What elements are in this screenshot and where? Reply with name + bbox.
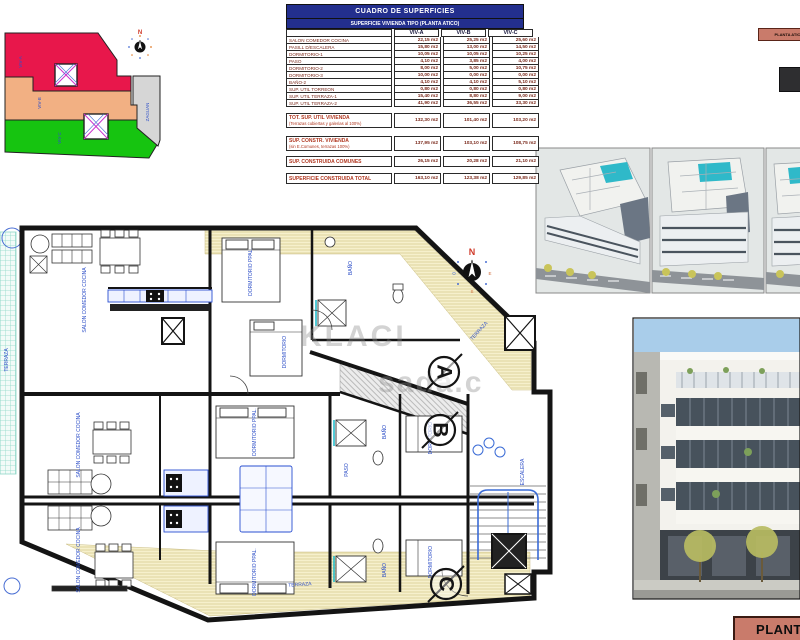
floor-plan: KLACI sada.c SALON COMEDOR COCINA SALON … — [0, 228, 550, 620]
furniture-living-bc — [48, 422, 133, 591]
site-plan: VIV-A VIV-B VIV-C ZAGUAN N — [5, 30, 160, 158]
site-area-viv-c — [5, 120, 158, 158]
site-label-zaguan: ZAGUAN — [145, 103, 150, 122]
header-empty-cell — [286, 29, 392, 37]
table-row: SUP. UTIL TERRAZA-1 15,40 m2 8,80 m2 9,0… — [286, 93, 524, 100]
svg-text:KLACI: KLACI — [300, 320, 407, 353]
bedrooms-a — [222, 238, 302, 376]
furniture-living-a — [30, 230, 140, 273]
summary-construida-comunes: SUP. CONSTRUIDA COMUNES 26,15 m2 20,28 m… — [286, 156, 524, 167]
svg-text:PASO: PASO — [344, 463, 350, 477]
planter-circle-bottom — [4, 578, 20, 594]
site-compass-icon: N — [128, 30, 152, 59]
header-viv-b: VIV-B — [441, 29, 486, 37]
site-label-viv-b: VIV-B — [37, 97, 42, 109]
section-marker-a: A — [433, 364, 456, 379]
summary-total-util: TOT. SUP. UTIL VIVIENDA (Terrazas cubier… — [286, 113, 524, 128]
summary-construida-total: SUPERFICIE CONSTRUIDA TOTAL 163,10 m2 12… — [286, 173, 524, 184]
render-thumb-2 — [652, 148, 764, 293]
svg-text:DORMITORIO: DORMITORIO — [282, 336, 288, 369]
table-row: DORMITORIO-2 8,00 m2 5,00 m2 10,75 m2 — [286, 65, 524, 72]
detail-chip — [779, 67, 800, 92]
table-row: BAÑO-2 4,10 m2 4,10 m2 5,10 m2 — [286, 79, 524, 86]
render-thumb-3 — [766, 148, 800, 293]
svg-text:E: E — [488, 271, 491, 276]
svg-text:TERRAZA: TERRAZA — [4, 348, 10, 372]
section-marker-b: B — [429, 422, 452, 437]
svg-text:N: N — [469, 247, 476, 257]
render-thumb-1 — [536, 148, 650, 293]
svg-text:S: S — [470, 289, 473, 294]
surface-table-title: CUADRO DE SUPERFICIES — [286, 4, 524, 19]
svg-text:ESCALERA: ESCALERA — [520, 458, 526, 485]
table-row: SUP. UTIL TERRAZA-2 41,90 m2 36,55 m2 33… — [286, 100, 524, 107]
summary-constr-vivienda: SUP. CONSTR. VIVIENDA (sin E.Comunes, te… — [286, 136, 524, 151]
sheet-title-tag: PLANTA ATICO — [733, 616, 800, 640]
site-label-viv-a: VIV-A — [18, 56, 23, 68]
table-row: PASO 4,10 m2 3,85 m2 4,00 m2 — [286, 58, 524, 65]
svg-text:SALON COMEDOR COCINA: SALON COMEDOR COCINA — [82, 267, 88, 333]
surface-table-header-row: VIV-A VIV-B VIV-C — [286, 29, 524, 37]
table-row: PASILL D/ESCALERA 15,80 m2 13,00 m2 14,5… — [286, 44, 524, 51]
facade-balconies — [676, 398, 800, 524]
site-torreon-2 — [84, 114, 108, 139]
section-marker-c: C — [435, 576, 458, 591]
svg-text:BAÑO: BAÑO — [381, 563, 388, 577]
site-label-viv-c: VIV-C — [57, 131, 62, 144]
svg-text:BAÑO: BAÑO — [381, 425, 388, 439]
table-row: SUP. UTIL TORREON 0,80 m2 0,80 m2 0,80 m… — [286, 86, 524, 93]
svg-text:DORMITORIO PPAL.: DORMITORIO PPAL. — [248, 248, 254, 296]
header-viv-c: VIV-C — [488, 29, 533, 37]
kitchens-bc — [164, 470, 208, 532]
render-thumbnails — [536, 148, 800, 293]
table-row: SALON COMEDOR COCINA 22,15 m2 25,25 m2 2… — [286, 37, 524, 44]
svg-text:BAÑO: BAÑO — [347, 261, 354, 275]
site-torreon-1 — [55, 64, 77, 86]
svg-text:O: O — [452, 271, 456, 276]
mini-plan-tag: PLANTA ATICO — [758, 28, 800, 41]
header-viv-a: VIV-A — [394, 29, 439, 37]
svg-text:SALON COMEDOR COCINA: SALON COMEDOR COCINA — [76, 527, 82, 593]
facade-render — [633, 318, 800, 599]
table-row: DORMITORIO-3 10,00 m2 0,00 m2 0,00 m2 — [286, 72, 524, 79]
surface-table: CUADRO DE SUPERFICIES SUPERFICIE VIVIEND… — [286, 4, 524, 184]
table-row: DORMITORIO-1 10,05 m2 10,05 m2 10,25 m2 — [286, 51, 524, 58]
kitchen-a — [108, 290, 212, 311]
svg-text:SALON COMEDOR COCINA: SALON COMEDOR COCINA — [76, 412, 82, 478]
svg-text:DORMITORIO PPAL.: DORMITORIO PPAL. — [252, 408, 258, 456]
surface-table-subtitle: SUPERFICIE VIVIENDA TIPO (PLANTA ATICO) — [286, 19, 524, 29]
svg-text:DORMITORIO: DORMITORIO — [428, 546, 434, 579]
architectural-plan-sheet: VIV-A VIV-B VIV-C ZAGUAN N — [0, 0, 800, 640]
svg-text:DORMITORIO PPAL.: DORMITORIO PPAL. — [252, 548, 258, 596]
site-compass-n-label: N — [138, 30, 142, 36]
